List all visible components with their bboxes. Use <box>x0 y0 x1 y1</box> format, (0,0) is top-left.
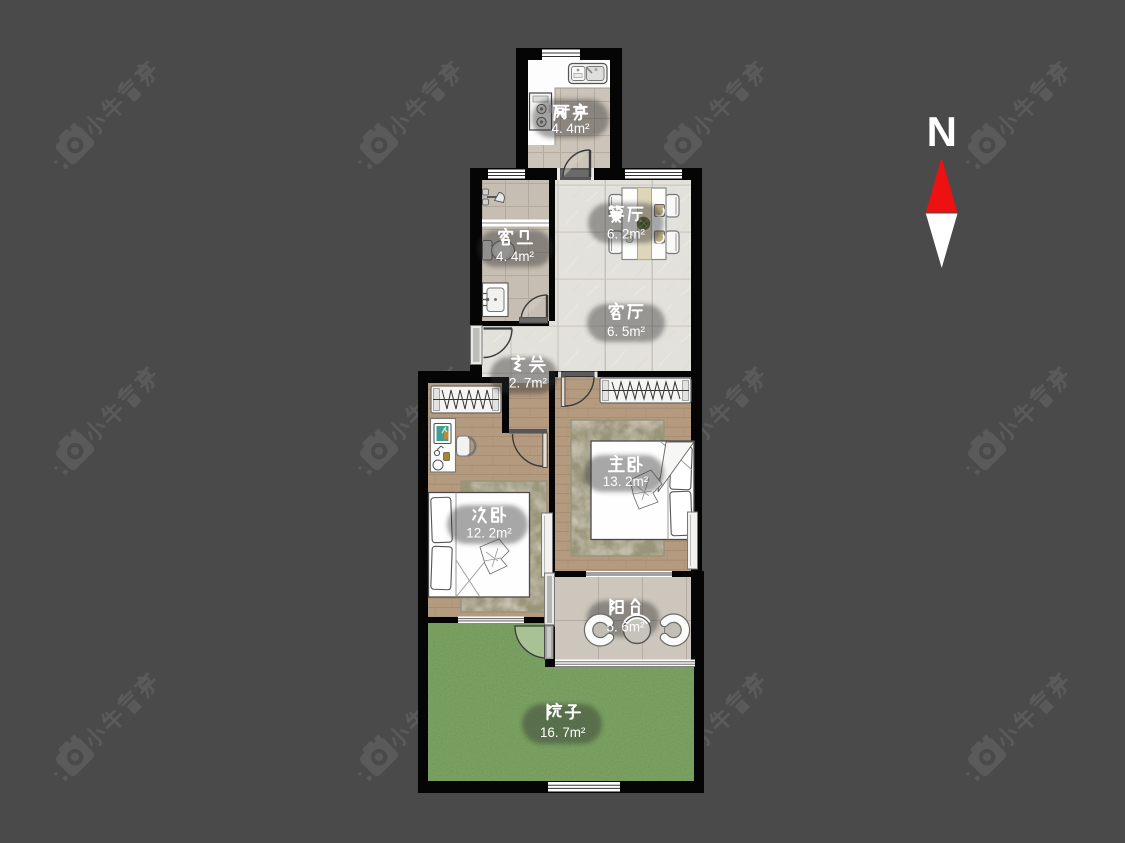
svg-text:4. 4m²: 4. 4m² <box>552 121 590 136</box>
svg-text:13. 2m²: 13. 2m² <box>603 474 649 489</box>
svg-text:6. 5m²: 6. 5m² <box>607 324 645 339</box>
svg-text:5. 6m²: 5. 6m² <box>607 620 645 635</box>
svg-text:4. 4m²: 4. 4m² <box>496 249 534 264</box>
svg-text:N: N <box>927 108 957 155</box>
svg-text:16. 7m²: 16. 7m² <box>540 725 586 740</box>
svg-text:2. 7m²: 2. 7m² <box>509 376 547 391</box>
svg-text:6. 2m²: 6. 2m² <box>607 227 645 242</box>
svg-text:12. 2m²: 12. 2m² <box>466 526 512 541</box>
